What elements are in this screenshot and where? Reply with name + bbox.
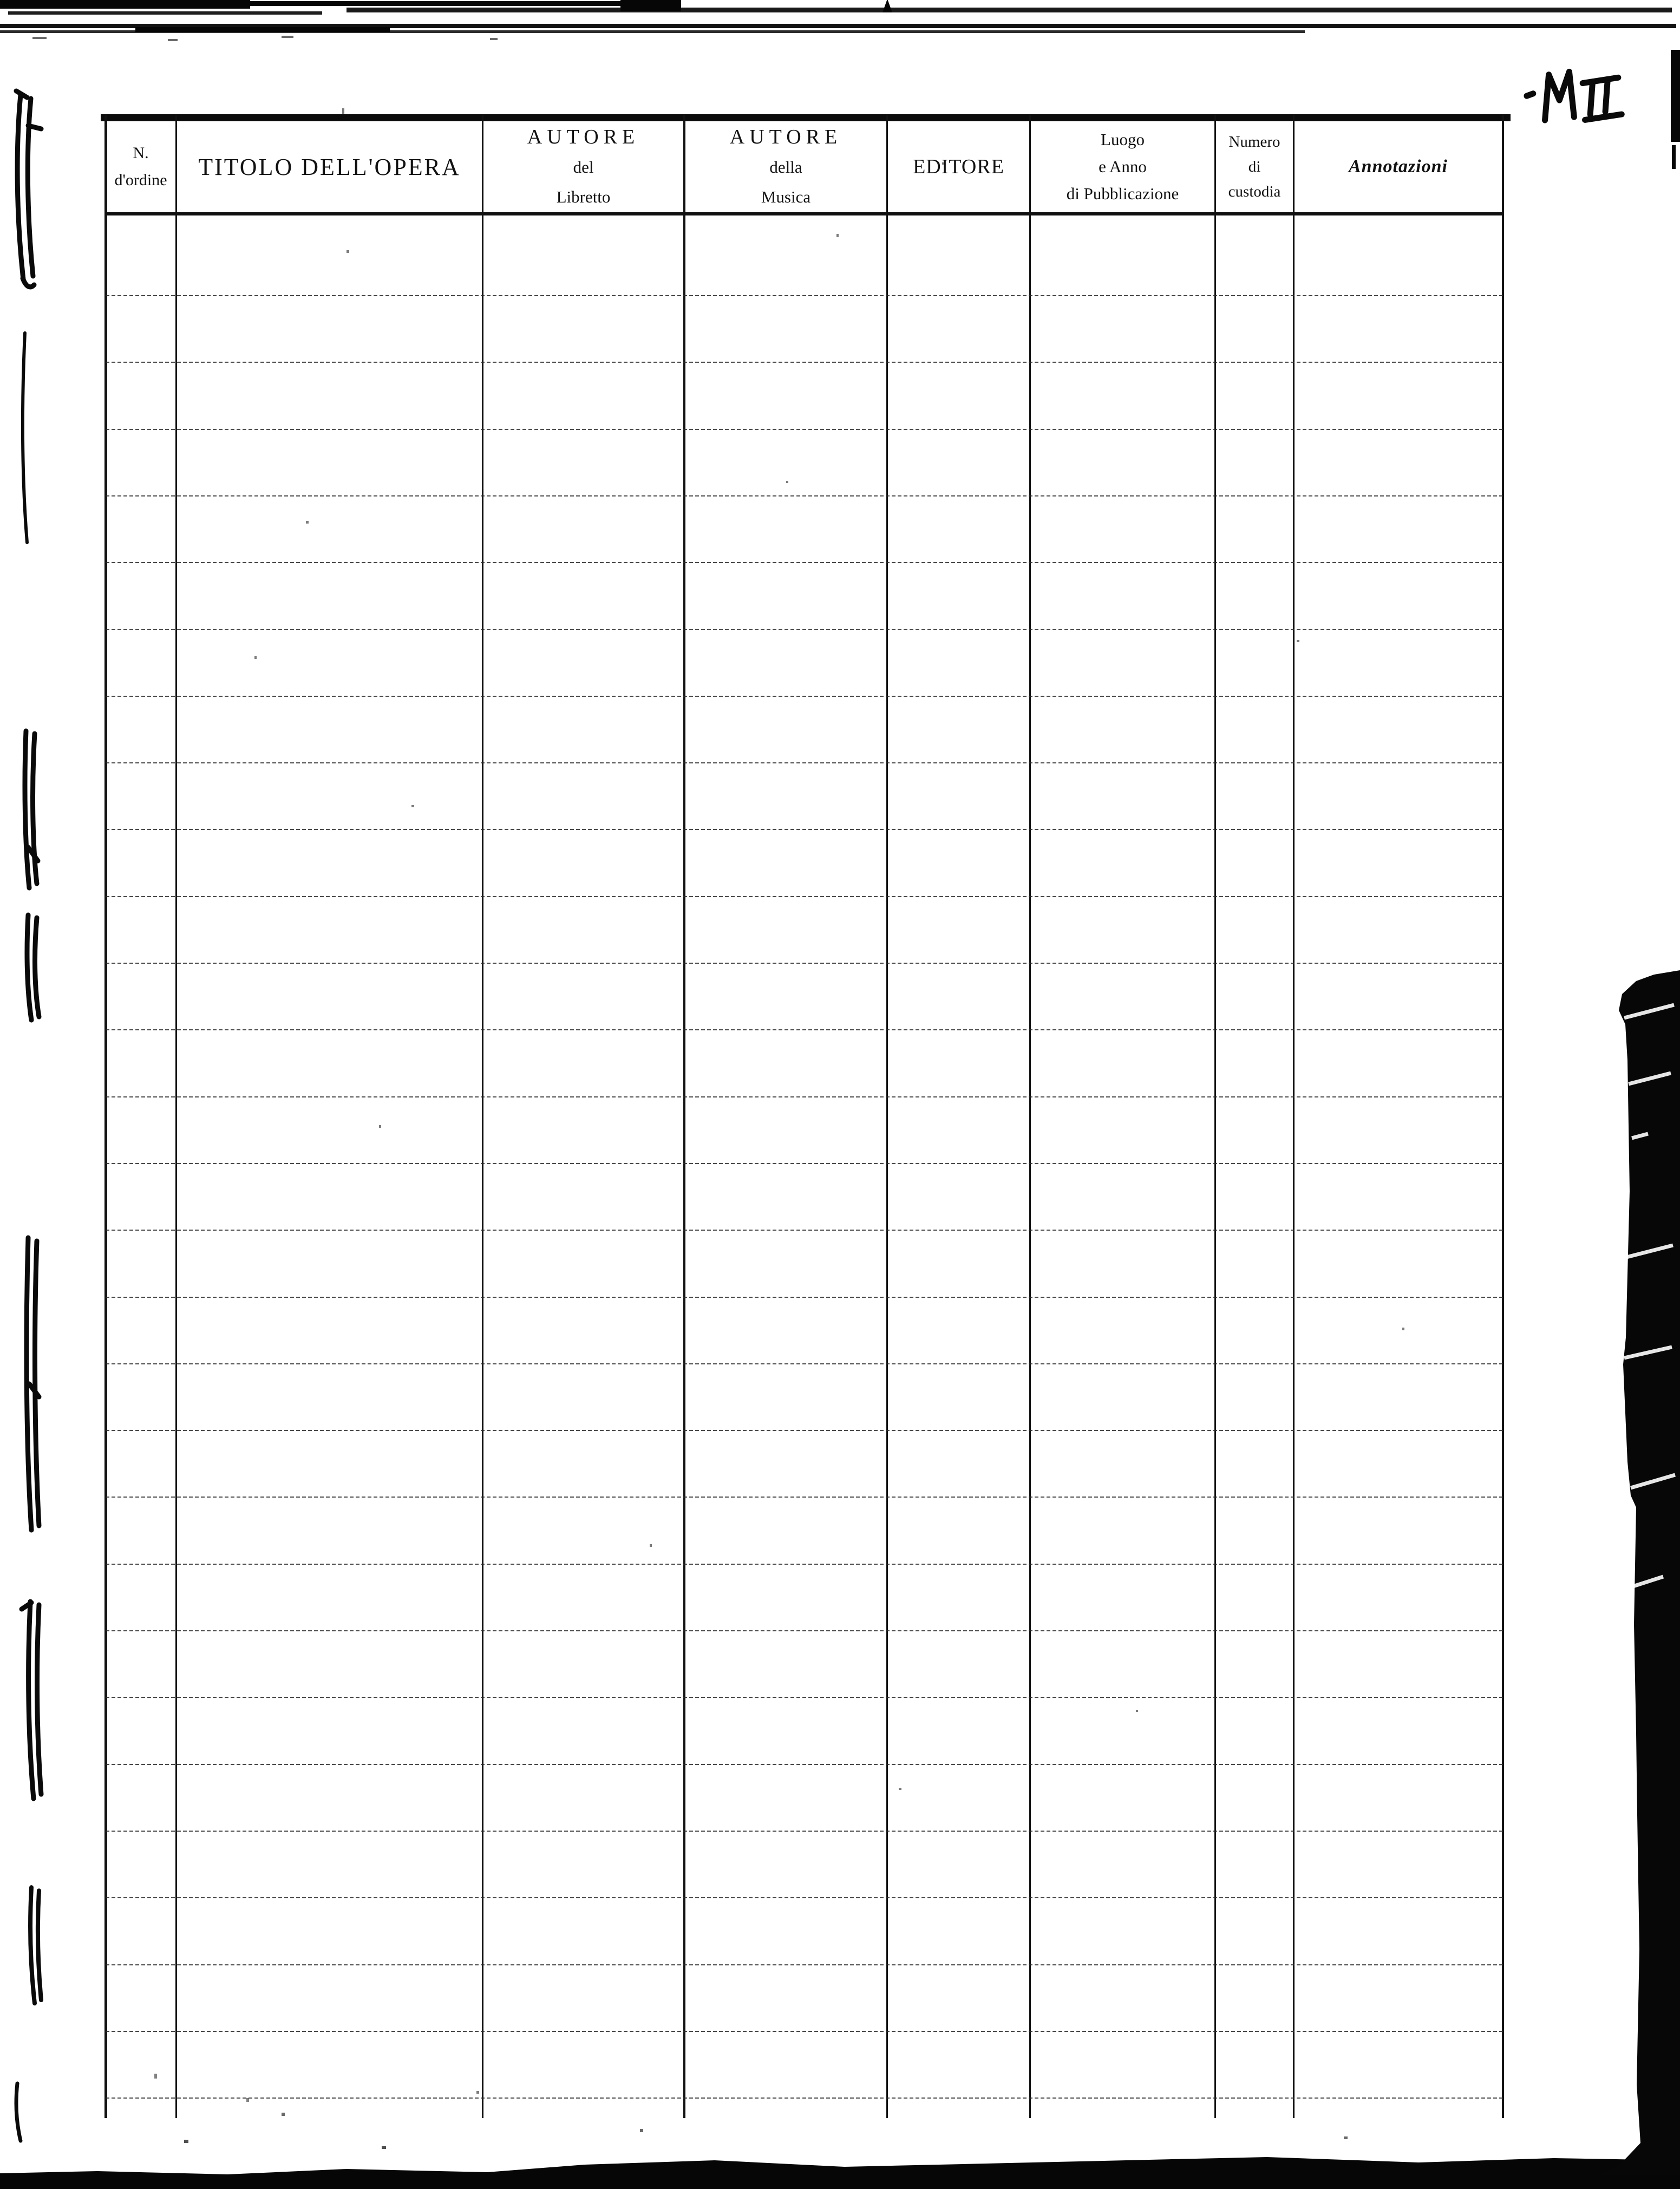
ruled-line	[106, 2031, 1503, 2032]
header-cell-autore-libretto: AUTORE del Libretto	[483, 121, 683, 212]
header-label: Libretto	[557, 182, 611, 212]
header-label: Annotazioni	[1349, 156, 1448, 177]
scan-noise-specks	[254, 108, 1404, 2094]
ruled-line	[106, 2097, 1503, 2099]
header-label: N.	[133, 140, 148, 167]
handwritten-m2-icon	[1522, 61, 1631, 131]
right-edge-shadow-artifact	[1598, 50, 1680, 2175]
ruled-line	[106, 1831, 1503, 1832]
header-label: del	[573, 152, 594, 182]
ruled-line	[106, 429, 1503, 430]
ruled-line	[106, 829, 1503, 830]
header-cell-autore-musica: AUTORE della Musica	[685, 121, 886, 212]
header-label: custodia	[1228, 179, 1281, 204]
scanned-ledger-page: N. d'ordine TITOLO DELL'OPERA AUTORE del…	[0, 0, 1680, 2189]
ruled-line	[106, 1163, 1503, 1164]
ruled-line	[106, 1029, 1503, 1030]
ruled-line	[106, 495, 1503, 496]
column-divider	[683, 115, 685, 2118]
top-scan-edge-artifact	[0, 0, 1676, 41]
ruled-line	[106, 295, 1503, 296]
ruled-line	[106, 762, 1503, 763]
ruled-line	[106, 1430, 1503, 1431]
column-divider	[482, 115, 483, 2118]
ruled-line	[106, 1564, 1503, 1565]
header-cell-editore: EDITORE	[888, 121, 1029, 212]
header-label: AUTORE	[730, 122, 842, 152]
ruled-line	[106, 1297, 1503, 1298]
header-cell-luogo-pubblicazione: Luogo e Anno di Pubblicazione	[1031, 121, 1214, 212]
ruled-line	[106, 362, 1503, 363]
ruled-line	[106, 696, 1503, 697]
header-cell-titolo-opera: TITOLO DELL'OPERA	[177, 121, 482, 212]
ruled-line	[106, 1697, 1503, 1698]
header-label: TITOLO DELL'OPERA	[198, 153, 461, 181]
header-label: della	[769, 152, 802, 182]
ruled-line	[106, 963, 1503, 964]
bottom-scan-band-artifact	[0, 2074, 1680, 2189]
ruled-line	[106, 1964, 1503, 1965]
header-label: AUTORE	[527, 122, 639, 152]
column-divider	[886, 115, 888, 2118]
header-label: d'ordine	[114, 167, 167, 194]
table-left-border	[104, 115, 107, 2118]
header-label: Numero	[1228, 129, 1280, 154]
handwritten-page-mark	[1522, 61, 1631, 131]
header-label: Musica	[761, 182, 810, 212]
header-label: EDITORE	[913, 155, 1004, 179]
header-cell-numero-custodia: Numero di custodia	[1216, 121, 1293, 212]
header-label: Luogo	[1101, 126, 1145, 153]
column-divider	[1214, 115, 1216, 2118]
ruled-line	[106, 896, 1503, 897]
ruled-line	[106, 562, 1503, 563]
ruled-line	[106, 629, 1503, 630]
header-cell-n-ordine: N. d'ordine	[106, 121, 175, 212]
header-label: di Pubblicazione	[1067, 180, 1179, 207]
header-label: di	[1248, 154, 1261, 179]
header-label: e Anno	[1099, 153, 1147, 180]
ruled-line	[106, 1764, 1503, 1765]
header-cell-annotazioni: Annotazioni	[1295, 121, 1502, 212]
ruled-line	[106, 1497, 1503, 1498]
left-binding-marks-artifact	[16, 91, 41, 2141]
scan-artifacts	[0, 0, 1680, 2189]
ruled-line	[106, 1363, 1503, 1364]
ruled-line	[106, 1096, 1503, 1097]
table-right-border	[1502, 115, 1504, 2118]
ruled-line	[106, 1897, 1503, 1898]
column-divider	[1293, 115, 1295, 2118]
column-divider	[175, 115, 177, 2118]
table-top-rule	[101, 114, 1511, 121]
ruled-line	[106, 1230, 1503, 1231]
column-divider	[1029, 115, 1031, 2118]
ruled-line	[106, 1630, 1503, 1631]
